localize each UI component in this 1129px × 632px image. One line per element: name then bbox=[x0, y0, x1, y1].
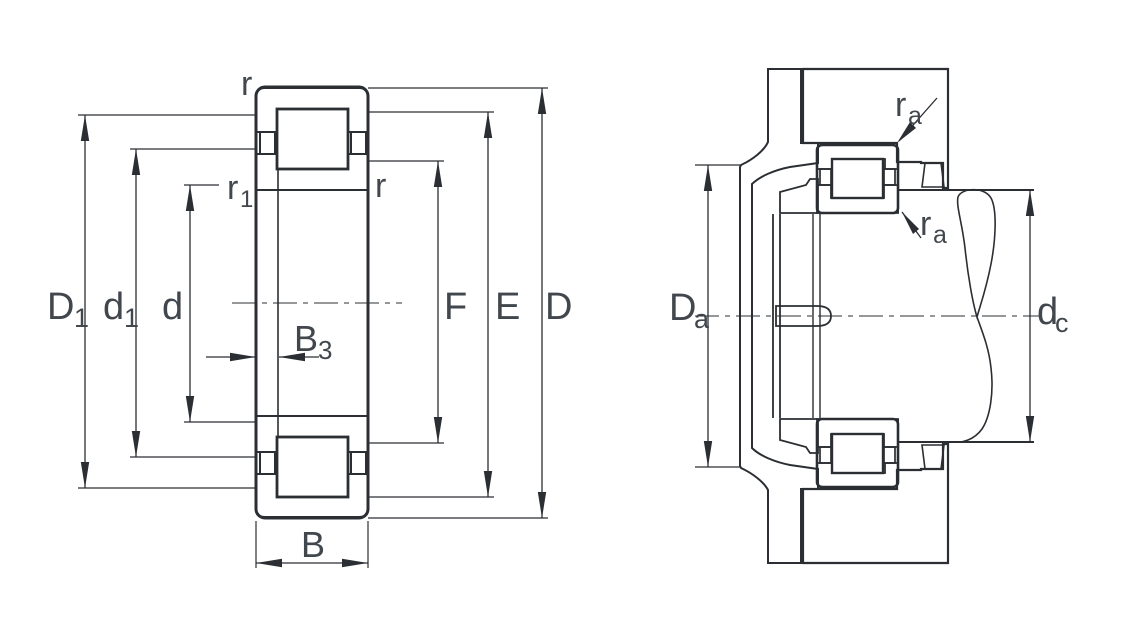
label-d: d bbox=[162, 286, 183, 328]
label-Da: D bbox=[669, 287, 696, 329]
technical-drawing-page: D 1 d 1 d F bbox=[0, 0, 1129, 632]
dim-B: B bbox=[256, 521, 368, 568]
label-B3: B bbox=[294, 318, 318, 359]
label-B3-sub: 3 bbox=[318, 335, 332, 365]
bearing-dimension-drawing: D 1 d 1 d F bbox=[0, 0, 1129, 632]
cage-upper-right bbox=[351, 132, 366, 154]
label-D1-sub: 1 bbox=[74, 303, 89, 333]
label-d1: d bbox=[103, 286, 124, 328]
inner-ring-lower bbox=[256, 416, 368, 452]
label-E: E bbox=[495, 286, 520, 328]
bearing-lower-mounted bbox=[817, 419, 898, 487]
callout-ra-bottom: r a bbox=[902, 205, 947, 249]
label-d1-sub: 1 bbox=[124, 303, 139, 333]
cage-lower-right bbox=[351, 452, 366, 474]
shaft-break-curve bbox=[954, 317, 992, 442]
angle-ring-lower bbox=[780, 419, 818, 453]
cage-upper-left bbox=[260, 132, 275, 154]
label-Da-sub: a bbox=[694, 304, 710, 334]
seal-ring-upper bbox=[922, 163, 944, 187]
outer-ring-lower bbox=[256, 474, 368, 517]
label-dc-sub: c bbox=[1055, 308, 1069, 338]
label-D1: D bbox=[47, 286, 74, 328]
callout-ra-top: r a bbox=[895, 86, 937, 143]
label-ra-bottom: r bbox=[920, 205, 931, 243]
angle-ring-upper bbox=[780, 179, 818, 213]
label-ra-bottom-sub: a bbox=[933, 221, 947, 249]
dim-B3: B 3 bbox=[206, 318, 332, 365]
label-B: B bbox=[301, 524, 325, 565]
roller-lower bbox=[277, 437, 348, 497]
label-F: F bbox=[444, 286, 467, 328]
left-view-bearing-section: D 1 d 1 d F bbox=[47, 65, 572, 568]
inner-ring-upper bbox=[256, 154, 368, 190]
label-r1: r bbox=[227, 169, 238, 207]
label-r1-sub: 1 bbox=[240, 186, 253, 213]
label-r-top: r bbox=[241, 65, 252, 103]
label-r-inner: r bbox=[375, 167, 386, 205]
shaft-break-section bbox=[958, 190, 996, 317]
label-ra-top-sub: a bbox=[908, 102, 922, 130]
cage-lower-left bbox=[260, 452, 275, 474]
dim-D1: D 1 bbox=[47, 115, 256, 488]
bearing-upper-mounted bbox=[817, 145, 898, 213]
seal-ring-lower bbox=[922, 445, 944, 469]
label-ra-top: r bbox=[895, 86, 906, 124]
housing-lower bbox=[803, 444, 948, 563]
label-D: D bbox=[545, 286, 572, 328]
right-view-mounting-section: D a d c r a r a bbox=[669, 69, 1069, 563]
roller-upper bbox=[277, 109, 348, 169]
housing-upper bbox=[803, 69, 948, 188]
